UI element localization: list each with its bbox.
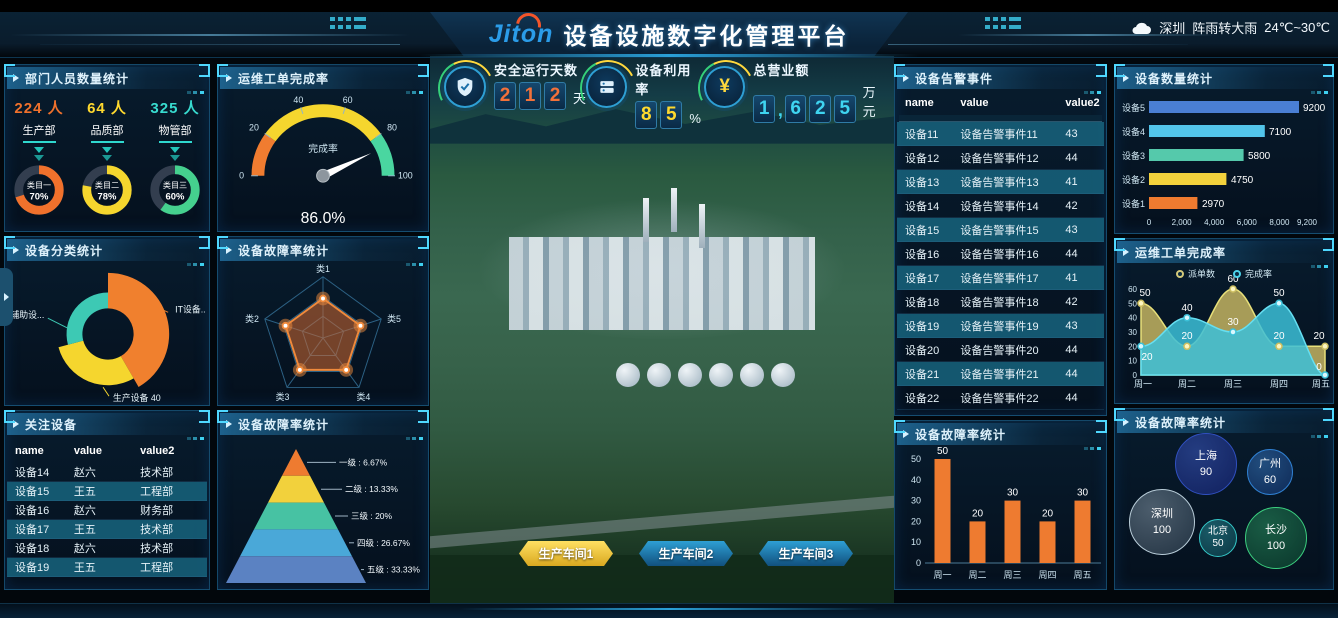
- bar-value: 20: [972, 508, 984, 519]
- gauge-value: 86.0%: [301, 210, 346, 227]
- top-black-strip: [0, 0, 1338, 12]
- donut-label: 类目一: [27, 180, 51, 190]
- chart-legend: 派单数 完成率: [1115, 267, 1333, 280]
- kpi-unit: 万元: [863, 82, 888, 120]
- bar-value: 30: [1077, 488, 1089, 499]
- cell: 设备告警事件22: [960, 390, 1065, 406]
- pyramid-label: 五级 : 33.33%: [367, 565, 420, 575]
- radar-axis-label: 类5: [387, 313, 401, 324]
- x-tick: 2,000: [1172, 218, 1193, 227]
- bubble-value: 90: [1200, 464, 1212, 481]
- table-header: name value value2: [7, 439, 207, 463]
- page-title: 设备设施数字化管理平台: [563, 17, 849, 51]
- kpi-digit: 2: [809, 95, 831, 123]
- title-underline: [419, 54, 919, 57]
- cell: 赵六: [74, 502, 140, 518]
- chimney: [643, 198, 649, 242]
- sidebar-collapse-tab[interactable]: [0, 268, 13, 326]
- cell: 设备15: [15, 483, 74, 499]
- hbar-value: 2970: [1202, 199, 1225, 210]
- kpi-digit: 5: [660, 101, 682, 129]
- x-tick: 周三: [1224, 379, 1242, 389]
- hbar[interactable]: [1149, 149, 1244, 161]
- cell: 44: [1065, 248, 1096, 260]
- bar-value: 50: [937, 446, 949, 457]
- bubble-city: 北京: [1208, 526, 1228, 538]
- slice-label-aux: 辅助设...: [10, 309, 44, 320]
- bubble-value: 100: [1153, 522, 1171, 539]
- cell: 工程部: [140, 483, 199, 499]
- cell: 设备19: [905, 318, 960, 334]
- point-label: 50: [1273, 288, 1285, 299]
- slice-label-it: IT设备..: [175, 303, 206, 314]
- radar-axis-label: 类1: [316, 263, 330, 274]
- donut-pct: 78%: [98, 191, 117, 202]
- pyramid-level-2[interactable]: [268, 476, 324, 503]
- dept-count: 325 人: [143, 97, 207, 118]
- x-tick: 4,000: [1204, 218, 1225, 227]
- bar[interactable]: [970, 521, 986, 563]
- dept-donuts: 类目一 70% 类目二 78% 类目三 60%: [5, 163, 209, 217]
- table-row[interactable]: 设备19王五工程部: [7, 558, 207, 577]
- legend-label: 派单数: [1188, 267, 1215, 280]
- pyramid-level-5[interactable]: [226, 556, 366, 583]
- footer-decor-bar: [0, 603, 1338, 618]
- chimney: [699, 204, 705, 248]
- kpi-digit: 2: [494, 82, 516, 110]
- panel-device-count: 设备数量统计 设备5 设备4 设备3 设备2 设备1 9200 7100 580…: [1114, 64, 1334, 234]
- table-row[interactable]: 设备17设备告警事件1741: [897, 266, 1104, 290]
- table-row[interactable]: 设备13设备告警事件1341: [897, 170, 1104, 194]
- gauge-center-label: 完成率: [308, 142, 338, 155]
- bubble-guangzhou[interactable]: 广州 60: [1247, 449, 1293, 495]
- cell: 44: [1065, 152, 1096, 164]
- row-label: 设备4: [1122, 126, 1145, 137]
- cell: 设备18: [15, 540, 74, 556]
- dept-name: 品质部: [91, 122, 124, 143]
- header-decor-line: [10, 34, 410, 36]
- point-label: 20: [1313, 331, 1325, 342]
- cell: 设备18: [905, 294, 960, 310]
- table-row[interactable]: 设备19设备告警事件1943: [897, 314, 1104, 338]
- table-row[interactable]: 设备20设备告警事件2044: [897, 338, 1104, 362]
- point-label: 40: [1181, 303, 1193, 314]
- table-row[interactable]: 设备22设备告警事件2244: [897, 386, 1104, 410]
- cell: 设备13: [905, 174, 960, 190]
- bubble-city: 广州: [1259, 456, 1281, 473]
- radar-data-polygon: [286, 298, 361, 369]
- hbar-value: 4750: [1231, 175, 1254, 186]
- bubble-city: 深圳: [1151, 506, 1173, 523]
- bubble-city: 上海: [1195, 448, 1217, 465]
- panel-alarm-events: 设备告警事件 name value value2 设备11设备告警事件1143 …: [894, 64, 1107, 416]
- pyramid-label: 二级 : 13.33%: [345, 484, 398, 494]
- dept-count: 224 人: [7, 97, 71, 118]
- panel-title: 运维工单完成率: [1135, 244, 1226, 261]
- panel-arrow-icon: [903, 430, 909, 438]
- panel-title: 设备数量统计: [1135, 70, 1213, 87]
- panel-corner-dots: [200, 91, 204, 94]
- pyramid-chart: 一级 : 6.67% 二级 : 13.33% 三级 : 20% 四级 : 26.…: [218, 435, 424, 589]
- x-tick: 8,000: [1269, 218, 1290, 227]
- table-row[interactable]: 设备18设备告警事件1842: [897, 290, 1104, 314]
- kpi-row: 安全运行天数 2 1 2 天 设备利用率 8 5 % ¥ 总营业额 1: [444, 60, 888, 129]
- cell: 赵六: [74, 464, 140, 480]
- cell: 设备告警事件19: [960, 318, 1065, 334]
- panel-department-stats: 部门人员数量统计 224 人生产部 64 人品质部 325 人物管部 类目一 7…: [4, 64, 210, 232]
- x-tick: 周三: [1003, 570, 1021, 580]
- cell: 设备告警事件14: [960, 198, 1065, 214]
- dept-name: 生产部: [23, 122, 56, 143]
- header-decor-line: [888, 44, 1188, 45]
- y-tick: 50: [1128, 299, 1137, 308]
- cell: 42: [1065, 200, 1096, 212]
- cell: 43: [1065, 128, 1096, 140]
- point-label: 20: [1181, 331, 1193, 342]
- gauge-tick: 80: [387, 122, 397, 132]
- x-tick: 0: [1147, 218, 1152, 227]
- kpi-label: 总营业额: [753, 60, 888, 79]
- cell: 设备告警事件16: [960, 246, 1065, 262]
- bubble-value: 60: [1264, 472, 1276, 489]
- cell: 设备14: [905, 198, 960, 214]
- point-label: 0: [1316, 362, 1322, 373]
- panel-fault-radar: 设备故障率统计 类1 类2 类3 类4 类5: [217, 236, 429, 406]
- cell: 42: [1065, 296, 1096, 308]
- server-icon: [586, 66, 627, 108]
- cell: 41: [1065, 272, 1096, 284]
- donut-chart: 类目二 78%: [80, 163, 134, 217]
- row-label: 设备3: [1122, 150, 1145, 161]
- rose-pie-chart: 辅助设... IT设备.. 生产设备 40: [5, 261, 211, 405]
- point-label: 20: [1273, 331, 1285, 342]
- col-header: name: [15, 445, 74, 457]
- hbar[interactable]: [1149, 101, 1299, 113]
- cell: 工程部: [140, 559, 199, 575]
- bubble-city: 长沙: [1265, 522, 1287, 539]
- cell: 设备11: [905, 126, 960, 142]
- panel-device-category: 设备分类统计 辅助设... IT设备.. 生产设备 40: [4, 236, 210, 406]
- hbar-value: 7100: [1269, 127, 1292, 138]
- y-tick: 20: [1128, 342, 1137, 351]
- cell: 设备告警事件20: [960, 342, 1065, 358]
- cell: 王五: [74, 559, 140, 575]
- cell: 设备告警事件13: [960, 174, 1065, 190]
- y-tick: 60: [1128, 285, 1137, 294]
- bar-value: 20: [1042, 508, 1054, 519]
- col-header: value2: [140, 445, 199, 457]
- cell: 设备17: [905, 270, 960, 286]
- cell: 设备19: [15, 559, 74, 575]
- panel-arrow-icon: [226, 420, 232, 428]
- kpi-unit: %: [689, 111, 701, 126]
- pyramid-level-3[interactable]: [254, 503, 338, 530]
- pie-slice-aux[interactable]: [67, 293, 108, 345]
- x-tick: 9,200: [1297, 218, 1318, 227]
- kpi-digit: 1: [519, 82, 541, 110]
- scrolled-row-sliver: [899, 115, 1102, 122]
- cell: 设备15: [905, 222, 960, 238]
- panel-title: 运维工单完成率: [238, 70, 329, 87]
- area-chart: 0 10 20 30 40 50 60 50 20 60 20 20 20 40…: [1115, 263, 1335, 401]
- panel-title: 关注设备: [25, 416, 77, 433]
- table-row[interactable]: 设备14赵六技术部: [7, 463, 207, 482]
- yen-icon: ¥: [704, 66, 745, 108]
- chimney: [671, 188, 677, 232]
- bubble-value: 100: [1267, 538, 1285, 555]
- x-tick: 周五: [1312, 379, 1330, 389]
- pie-slice-prod[interactable]: [58, 341, 133, 386]
- cloud-icon: [1130, 20, 1152, 35]
- panel-arrow-icon: [1123, 418, 1129, 426]
- bubble-changsha[interactable]: 长沙 100: [1245, 507, 1307, 569]
- pyramid-level-4[interactable]: [240, 529, 352, 556]
- table-row[interactable]: 设备15设备告警事件1543: [897, 218, 1104, 242]
- table-row[interactable]: 设备11设备告警事件1143: [897, 122, 1104, 146]
- cell: 44: [1065, 392, 1096, 404]
- panel-title: 设备告警事件: [915, 70, 993, 87]
- kpi-revenue: ¥ 总营业额 1 , 6 2 5 万元: [704, 60, 888, 129]
- gauge-tick: 60: [343, 95, 353, 105]
- x-tick: 周二: [1178, 379, 1196, 389]
- x-tick: 周一: [933, 570, 951, 580]
- hbar[interactable]: [1149, 125, 1265, 137]
- donut-label: 类目三: [163, 180, 187, 190]
- y-tick: 30: [911, 496, 921, 506]
- hbar-value: 5800: [1248, 151, 1271, 162]
- cell: 设备告警事件15: [960, 222, 1065, 238]
- y-tick: 10: [1128, 357, 1137, 366]
- bubble-beijing[interactable]: 北京 50: [1199, 519, 1237, 557]
- kpi-utilization: 设备利用率 8 5 %: [586, 60, 704, 129]
- hbar-chart: 设备5 设备4 设备3 设备2 设备1 9200 7100 5800 4750 …: [1115, 89, 1335, 231]
- pyramid-label: 一级 : 6.67%: [339, 457, 388, 467]
- hbar-value: 9200: [1303, 103, 1326, 114]
- kpi-digit: 1: [753, 95, 775, 123]
- col-header: value: [960, 97, 1065, 109]
- kpi-digit: 6: [785, 95, 807, 123]
- y-tick: 40: [911, 475, 921, 485]
- panel-arrow-icon: [13, 420, 19, 428]
- cell: 设备告警事件17: [960, 270, 1065, 286]
- factory-buildings: [509, 237, 815, 330]
- cell: 设备告警事件21: [960, 366, 1065, 382]
- cell: 43: [1065, 224, 1096, 236]
- y-tick: 10: [911, 537, 921, 547]
- radar-axis-label: 类3: [276, 391, 290, 402]
- panel-title: 设备故障率统计: [1135, 414, 1226, 431]
- donut-chart: 类目三 60%: [148, 163, 202, 217]
- cell: 技术部: [140, 540, 199, 556]
- point-label: 20: [1141, 352, 1153, 363]
- cell: 技术部: [140, 464, 199, 480]
- panel-arrow-icon: [903, 74, 909, 82]
- jiton-logo: Jiton: [489, 20, 554, 49]
- col-header: name: [905, 97, 960, 109]
- header-decor-line: [40, 44, 400, 45]
- x-tick: 6,000: [1237, 218, 1258, 227]
- cell: 设备17: [15, 521, 74, 537]
- row-label: 设备2: [1122, 174, 1145, 185]
- panel-completion-area: 运维工单完成率 派单数 完成率 0 10 20 30 40 50 60 50 2…: [1114, 238, 1334, 404]
- panel-arrow-icon: [13, 74, 19, 82]
- table-row[interactable]: 设备16赵六财务部: [7, 501, 207, 520]
- weather-temp: 24℃~30℃: [1264, 20, 1330, 36]
- shield-check-icon: [444, 66, 486, 108]
- cell: 王五: [74, 483, 140, 499]
- table-row[interactable]: 设备21设备告警事件2144: [897, 362, 1104, 386]
- cell: 41: [1065, 176, 1096, 188]
- donut-label: 类目二: [95, 180, 119, 190]
- table-row[interactable]: 设备16设备告警事件1644: [897, 242, 1104, 266]
- dept-name: 物管部: [159, 122, 192, 143]
- panel-focus-devices: 关注设备 name value value2 设备14赵六技术部 设备15王五工…: [4, 410, 210, 590]
- x-tick: 周五: [1073, 570, 1091, 580]
- header-dash-decor: [985, 17, 1021, 29]
- donut-chart: 类目一 70%: [12, 163, 66, 217]
- gauge-tick: 40: [293, 95, 303, 105]
- panel-title: 设备故障率统计: [238, 416, 329, 433]
- panel-title: 设备故障率统计: [238, 242, 329, 259]
- x-tick: 周四: [1270, 379, 1288, 389]
- gauge-tick: 100: [398, 171, 413, 181]
- radar-chart: 类1 类2 类3 类4 类5: [218, 261, 428, 405]
- row-label: 设备1: [1122, 198, 1145, 209]
- panel-work-order-gauge: 运维工单完成率 0 20 40 60 80 100 完成率 86.0%: [217, 64, 429, 232]
- cell: 设备21: [905, 366, 960, 382]
- y-tick: 40: [1128, 314, 1137, 323]
- table-header: name value value2: [897, 91, 1104, 115]
- panel-title: 设备故障率统计: [915, 426, 1006, 443]
- col-header: value: [74, 445, 140, 457]
- kpi-comma: ,: [778, 100, 783, 121]
- x-tick: 周一: [1134, 379, 1152, 389]
- panel-arrow-icon: [1123, 74, 1129, 82]
- cell: 设备告警事件18: [960, 294, 1065, 310]
- weather-widget: 深圳 阵雨转大雨 24℃~30℃: [1130, 18, 1330, 37]
- panel-arrow-icon: [226, 246, 232, 254]
- pyramid-label: 四级 : 26.67%: [357, 538, 410, 548]
- bubble-shanghai[interactable]: 上海 90: [1175, 433, 1237, 495]
- hbar[interactable]: [1149, 197, 1197, 209]
- workshop-button-1[interactable]: 生产车间1: [519, 541, 613, 566]
- kpi-digit: 5: [834, 95, 856, 123]
- donut-pct: 60%: [166, 191, 185, 202]
- cell: 44: [1065, 344, 1096, 356]
- cell: 技术部: [140, 521, 199, 537]
- factory-3d-scene[interactable]: [430, 56, 894, 604]
- row-label: 设备5: [1122, 102, 1145, 113]
- cell: 设备16: [15, 502, 74, 518]
- kpi-label: 设备利用率: [635, 60, 704, 98]
- cell: 财务部: [140, 502, 199, 518]
- bar[interactable]: [935, 459, 951, 563]
- bar-chart: 0 10 20 30 40 50 50 20 30 20 30 周一 周二 周三…: [895, 445, 1108, 589]
- table-row[interactable]: 设备18赵六技术部: [7, 539, 207, 558]
- y-tick: 20: [911, 516, 921, 526]
- x-tick: 周二: [968, 570, 986, 580]
- bar-value: 30: [1007, 488, 1019, 499]
- panel-fault-pyramid: 设备故障率统计 一级 : 6.67% 二级 : 13.33% 三级 : 20% …: [217, 410, 429, 590]
- bar[interactable]: [1005, 501, 1021, 563]
- col-header: value2: [1065, 97, 1096, 109]
- gauge-tick: 0: [239, 171, 244, 181]
- cell: 44: [1065, 368, 1096, 380]
- point-label: 50: [1139, 288, 1151, 299]
- cell: 设备16: [905, 246, 960, 262]
- bubble-shenzhen[interactable]: 深圳 100: [1129, 489, 1195, 555]
- kpi-safety-days: 安全运行天数 2 1 2 天: [444, 60, 586, 129]
- workshop-button-3[interactable]: 生产车间3: [759, 541, 853, 566]
- point-label: 30: [1227, 317, 1239, 328]
- panel-fault-bubbles: 设备故障率统计 上海 90 广州 60 深圳 100 北京 50 长沙 100: [1114, 408, 1334, 590]
- pyramid-label: 三级 : 20%: [351, 511, 393, 521]
- weather-condition: 阵雨转大雨: [1192, 18, 1257, 37]
- legend-label: 完成率: [1245, 267, 1272, 280]
- panel-title: 部门人员数量统计: [25, 70, 129, 87]
- cell: 设备14: [15, 464, 74, 480]
- cell: 43: [1065, 320, 1096, 332]
- cell: 王五: [74, 521, 140, 537]
- y-tick: 50: [911, 454, 921, 464]
- panel-arrow-icon: [13, 246, 19, 254]
- table-row[interactable]: 设备17王五技术部: [7, 520, 207, 539]
- storage-tanks: [616, 363, 795, 387]
- panel-title: 设备分类统计: [25, 242, 103, 259]
- pyramid-level-1[interactable]: [282, 449, 310, 476]
- donut-pct: 70%: [30, 191, 49, 202]
- slice-label-prod: 生产设备 40: [113, 392, 161, 403]
- kpi-label: 安全运行天数: [494, 60, 586, 79]
- cell: 设备12: [905, 150, 960, 166]
- cell: 设备告警事件12: [960, 150, 1065, 166]
- weather-city: 深圳: [1159, 18, 1185, 37]
- gauge-chart: 0 20 40 60 80 100 完成率 86.0%: [218, 89, 430, 231]
- workshop-button-2[interactable]: 生产车间2: [639, 541, 733, 566]
- department-counts: 224 人生产部 64 人品质部 325 人物管部: [5, 97, 209, 161]
- bubble-value: 50: [1212, 538, 1223, 550]
- legend-item[interactable]: 派单数: [1176, 267, 1215, 280]
- y-tick: 0: [916, 558, 921, 568]
- table-row[interactable]: 设备12设备告警事件1244: [897, 146, 1104, 170]
- workshop-buttons: 生产车间1 生产车间2 生产车间3: [519, 541, 853, 566]
- bar[interactable]: [1040, 521, 1056, 563]
- header-dash-decor: [330, 17, 366, 29]
- gauge-tick: 20: [249, 122, 259, 132]
- y-tick: 30: [1128, 328, 1137, 337]
- legend-item[interactable]: 完成率: [1233, 267, 1272, 280]
- cell: 设备22: [905, 390, 960, 406]
- dept-count: 64 人: [75, 97, 139, 118]
- panel-fault-bar: 设备故障率统计 0 10 20 30 40 50 50 20 30 20 30 …: [894, 420, 1107, 590]
- cell: 赵六: [74, 540, 140, 556]
- kpi-digit: 8: [635, 101, 657, 129]
- kpi-digit: 2: [544, 82, 566, 110]
- app-title-bar: Jiton 设备设施数字化管理平台: [430, 12, 908, 56]
- cell: 设备20: [905, 342, 960, 358]
- panel-arrow-icon: [226, 74, 232, 82]
- panel-arrow-icon: [1123, 248, 1129, 256]
- hbar[interactable]: [1149, 173, 1226, 185]
- radar-axis-label: 类4: [357, 391, 371, 402]
- table-row[interactable]: 设备14设备告警事件1442: [897, 194, 1104, 218]
- table-row[interactable]: 设备15王五工程部: [7, 482, 207, 501]
- x-tick: 周四: [1038, 570, 1056, 580]
- cell: 设备告警事件11: [960, 126, 1065, 142]
- bar[interactable]: [1075, 501, 1091, 563]
- radar-axis-label: 类2: [245, 313, 259, 324]
